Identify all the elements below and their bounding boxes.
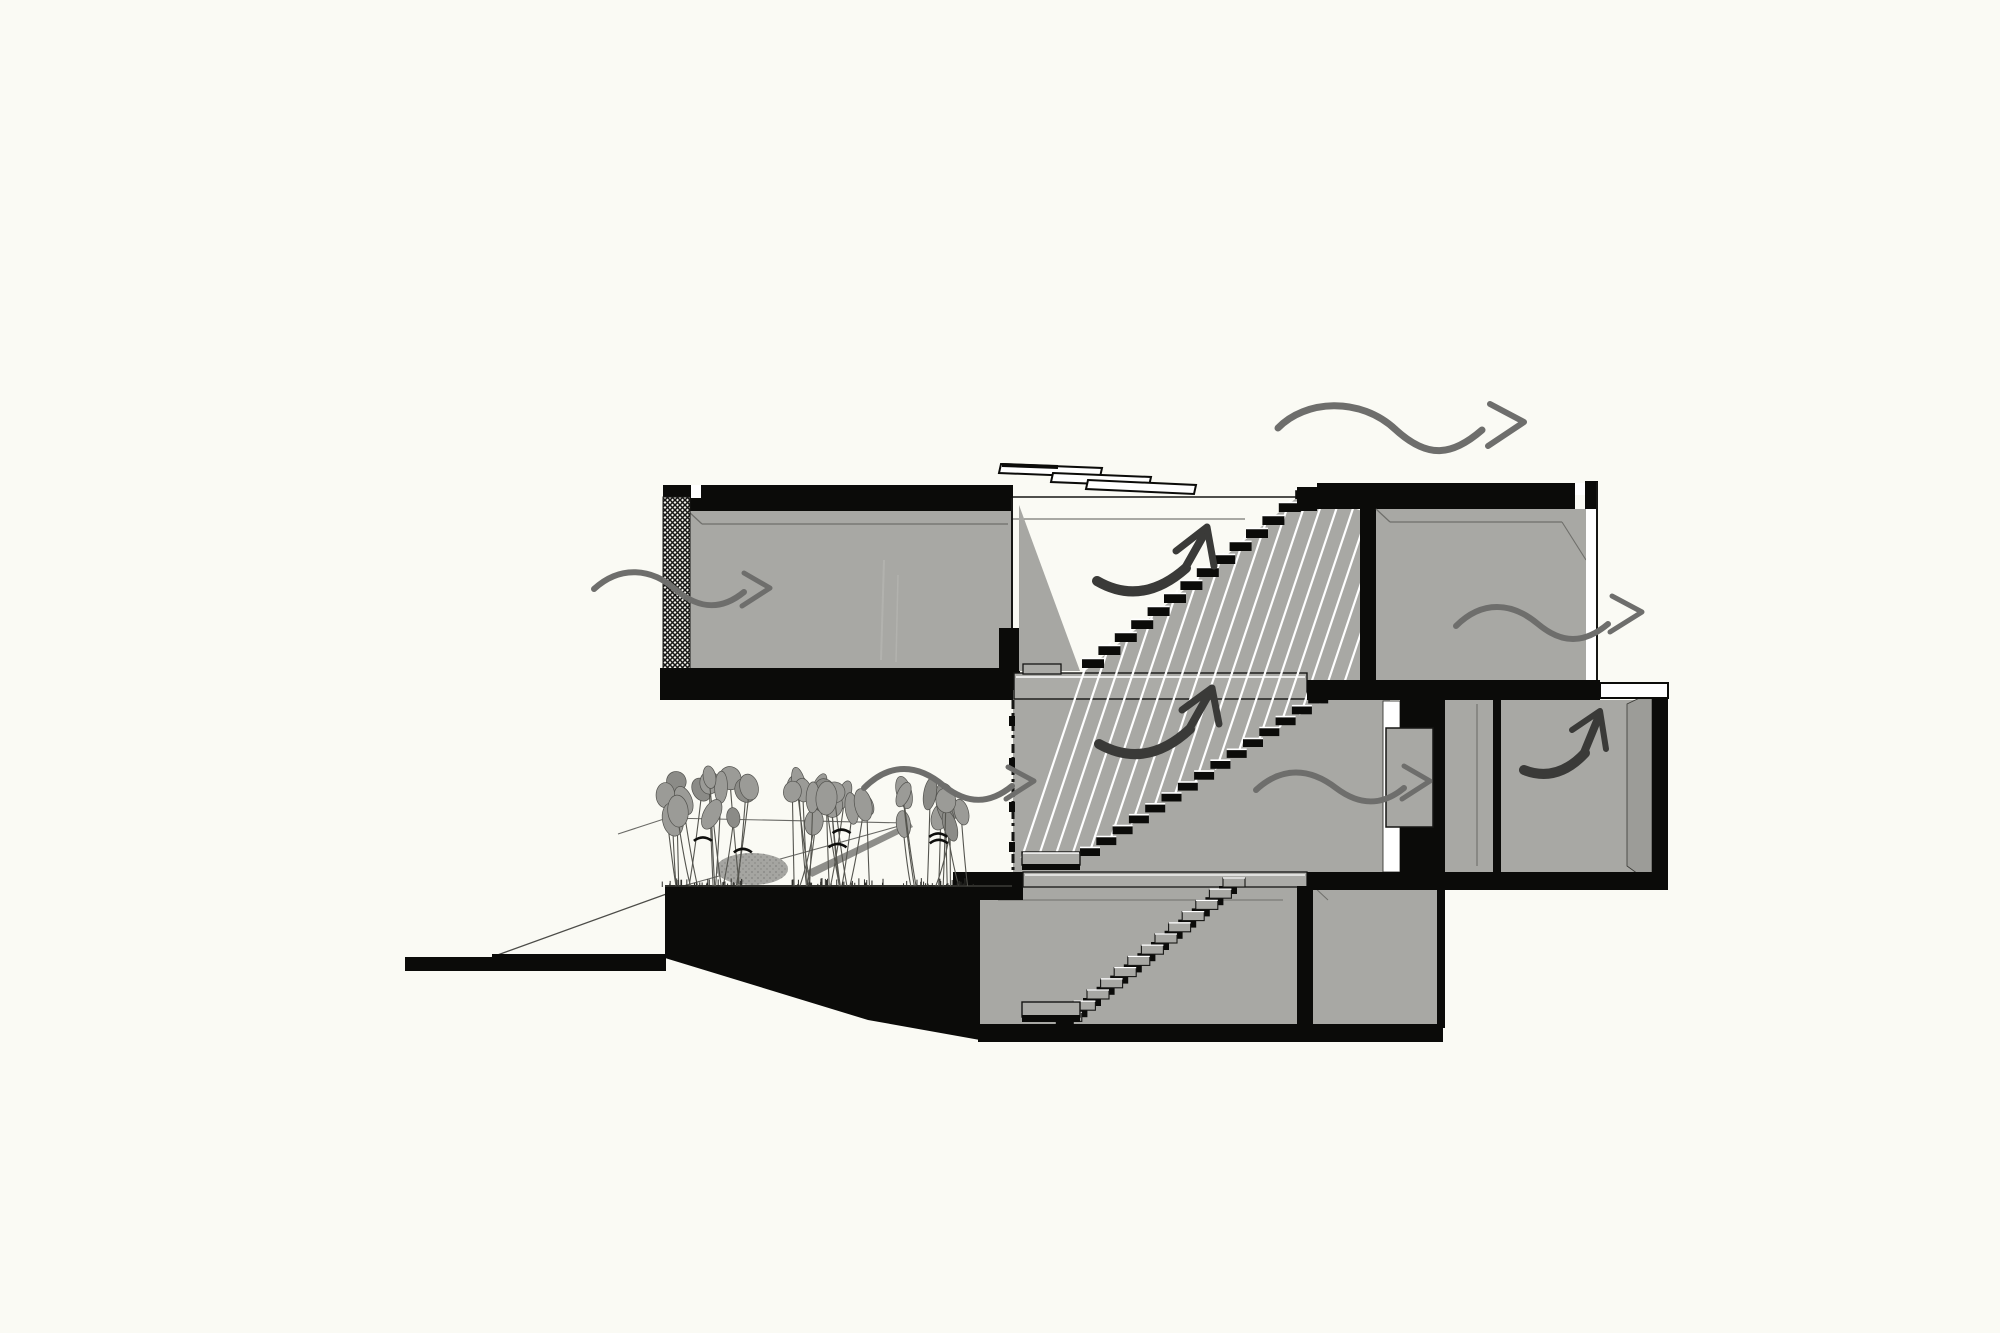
right-room-left-wall xyxy=(1360,509,1376,680)
left-room-interior xyxy=(688,511,1013,668)
section-diagram-canvas xyxy=(0,0,2000,1333)
left-room-floor-slab xyxy=(660,668,1020,700)
left-room-right-wall xyxy=(999,628,1020,670)
stair-step xyxy=(1210,761,1230,769)
basement-right-wall xyxy=(1437,886,1445,1028)
stair-step xyxy=(1243,739,1263,747)
skylight-slat-edge xyxy=(1002,465,1058,467)
stair-step xyxy=(1141,945,1163,954)
basement-landing-edge xyxy=(1022,1015,1080,1022)
corridor-wall xyxy=(1493,700,1501,874)
stair-step xyxy=(1101,979,1123,988)
right-room-floor-slab xyxy=(1307,680,1600,700)
mid-floor-slab xyxy=(1307,872,1668,890)
cut-edge-blob xyxy=(1009,716,1015,726)
stair-step xyxy=(1080,848,1100,856)
stair-step xyxy=(1197,568,1219,577)
stair-step xyxy=(1113,826,1133,834)
basement-floor-slab xyxy=(978,1024,1443,1042)
stair-top-block xyxy=(1297,487,1317,511)
mid-right-room-inner-face xyxy=(1627,692,1652,884)
stair-step xyxy=(1194,772,1214,780)
stair-step xyxy=(1209,889,1231,898)
landing-curb xyxy=(1023,664,1061,674)
basement-ceiling-slab xyxy=(1023,872,1307,887)
stair-step xyxy=(1164,594,1186,603)
stair-step xyxy=(1180,581,1202,590)
stair-step xyxy=(1223,878,1245,887)
cut-edge-blob xyxy=(1009,842,1015,852)
stair-step xyxy=(1098,646,1120,655)
stair-step xyxy=(1148,607,1170,616)
stair-step xyxy=(1196,900,1218,909)
section-drawing xyxy=(0,0,2000,1333)
stair-step xyxy=(1096,837,1116,845)
stair-step xyxy=(1169,923,1191,932)
basement-level xyxy=(953,872,1445,1042)
cut-edge-blob xyxy=(1009,802,1015,812)
stair-step xyxy=(1128,956,1150,965)
stair-step xyxy=(1082,659,1104,668)
stair-step xyxy=(1259,728,1279,736)
stair-step xyxy=(1262,516,1284,525)
floor-slab-extension xyxy=(1600,683,1668,698)
stair-step xyxy=(1145,804,1165,812)
right-room-interior xyxy=(1376,509,1586,680)
stair-step xyxy=(1114,968,1136,977)
right-room-roof-slab xyxy=(1317,483,1575,509)
stair-step xyxy=(1178,783,1198,791)
right-room-roof-notch xyxy=(1575,483,1585,495)
left-room-roof-slab xyxy=(663,485,1013,511)
stair-step xyxy=(1227,750,1247,758)
stair-step xyxy=(1087,990,1109,999)
basement-landing xyxy=(1022,1002,1080,1017)
mid-right-outer-wall xyxy=(1652,688,1668,890)
stair-step xyxy=(1115,633,1137,642)
stair-step xyxy=(1292,706,1312,714)
basement-dividing-wall xyxy=(1297,886,1313,1026)
mid-corridor xyxy=(1445,700,1493,874)
stair-step xyxy=(1129,815,1149,823)
basement-right-room xyxy=(1313,886,1437,1028)
ground-slab-lip xyxy=(492,954,666,958)
stair-step xyxy=(1230,542,1252,551)
ground-slab xyxy=(405,957,666,971)
stair-step xyxy=(1182,912,1204,921)
left-room-roof-notch xyxy=(691,485,701,498)
stair-step xyxy=(1162,794,1182,802)
stair-step xyxy=(1155,934,1177,943)
stair-step xyxy=(1131,620,1153,629)
stair-step xyxy=(1246,529,1268,538)
upper-left-room xyxy=(660,485,1020,700)
stair-landing-edge xyxy=(1022,864,1080,870)
stair-bottom-landing xyxy=(1022,852,1080,865)
stair-step xyxy=(1276,717,1296,725)
